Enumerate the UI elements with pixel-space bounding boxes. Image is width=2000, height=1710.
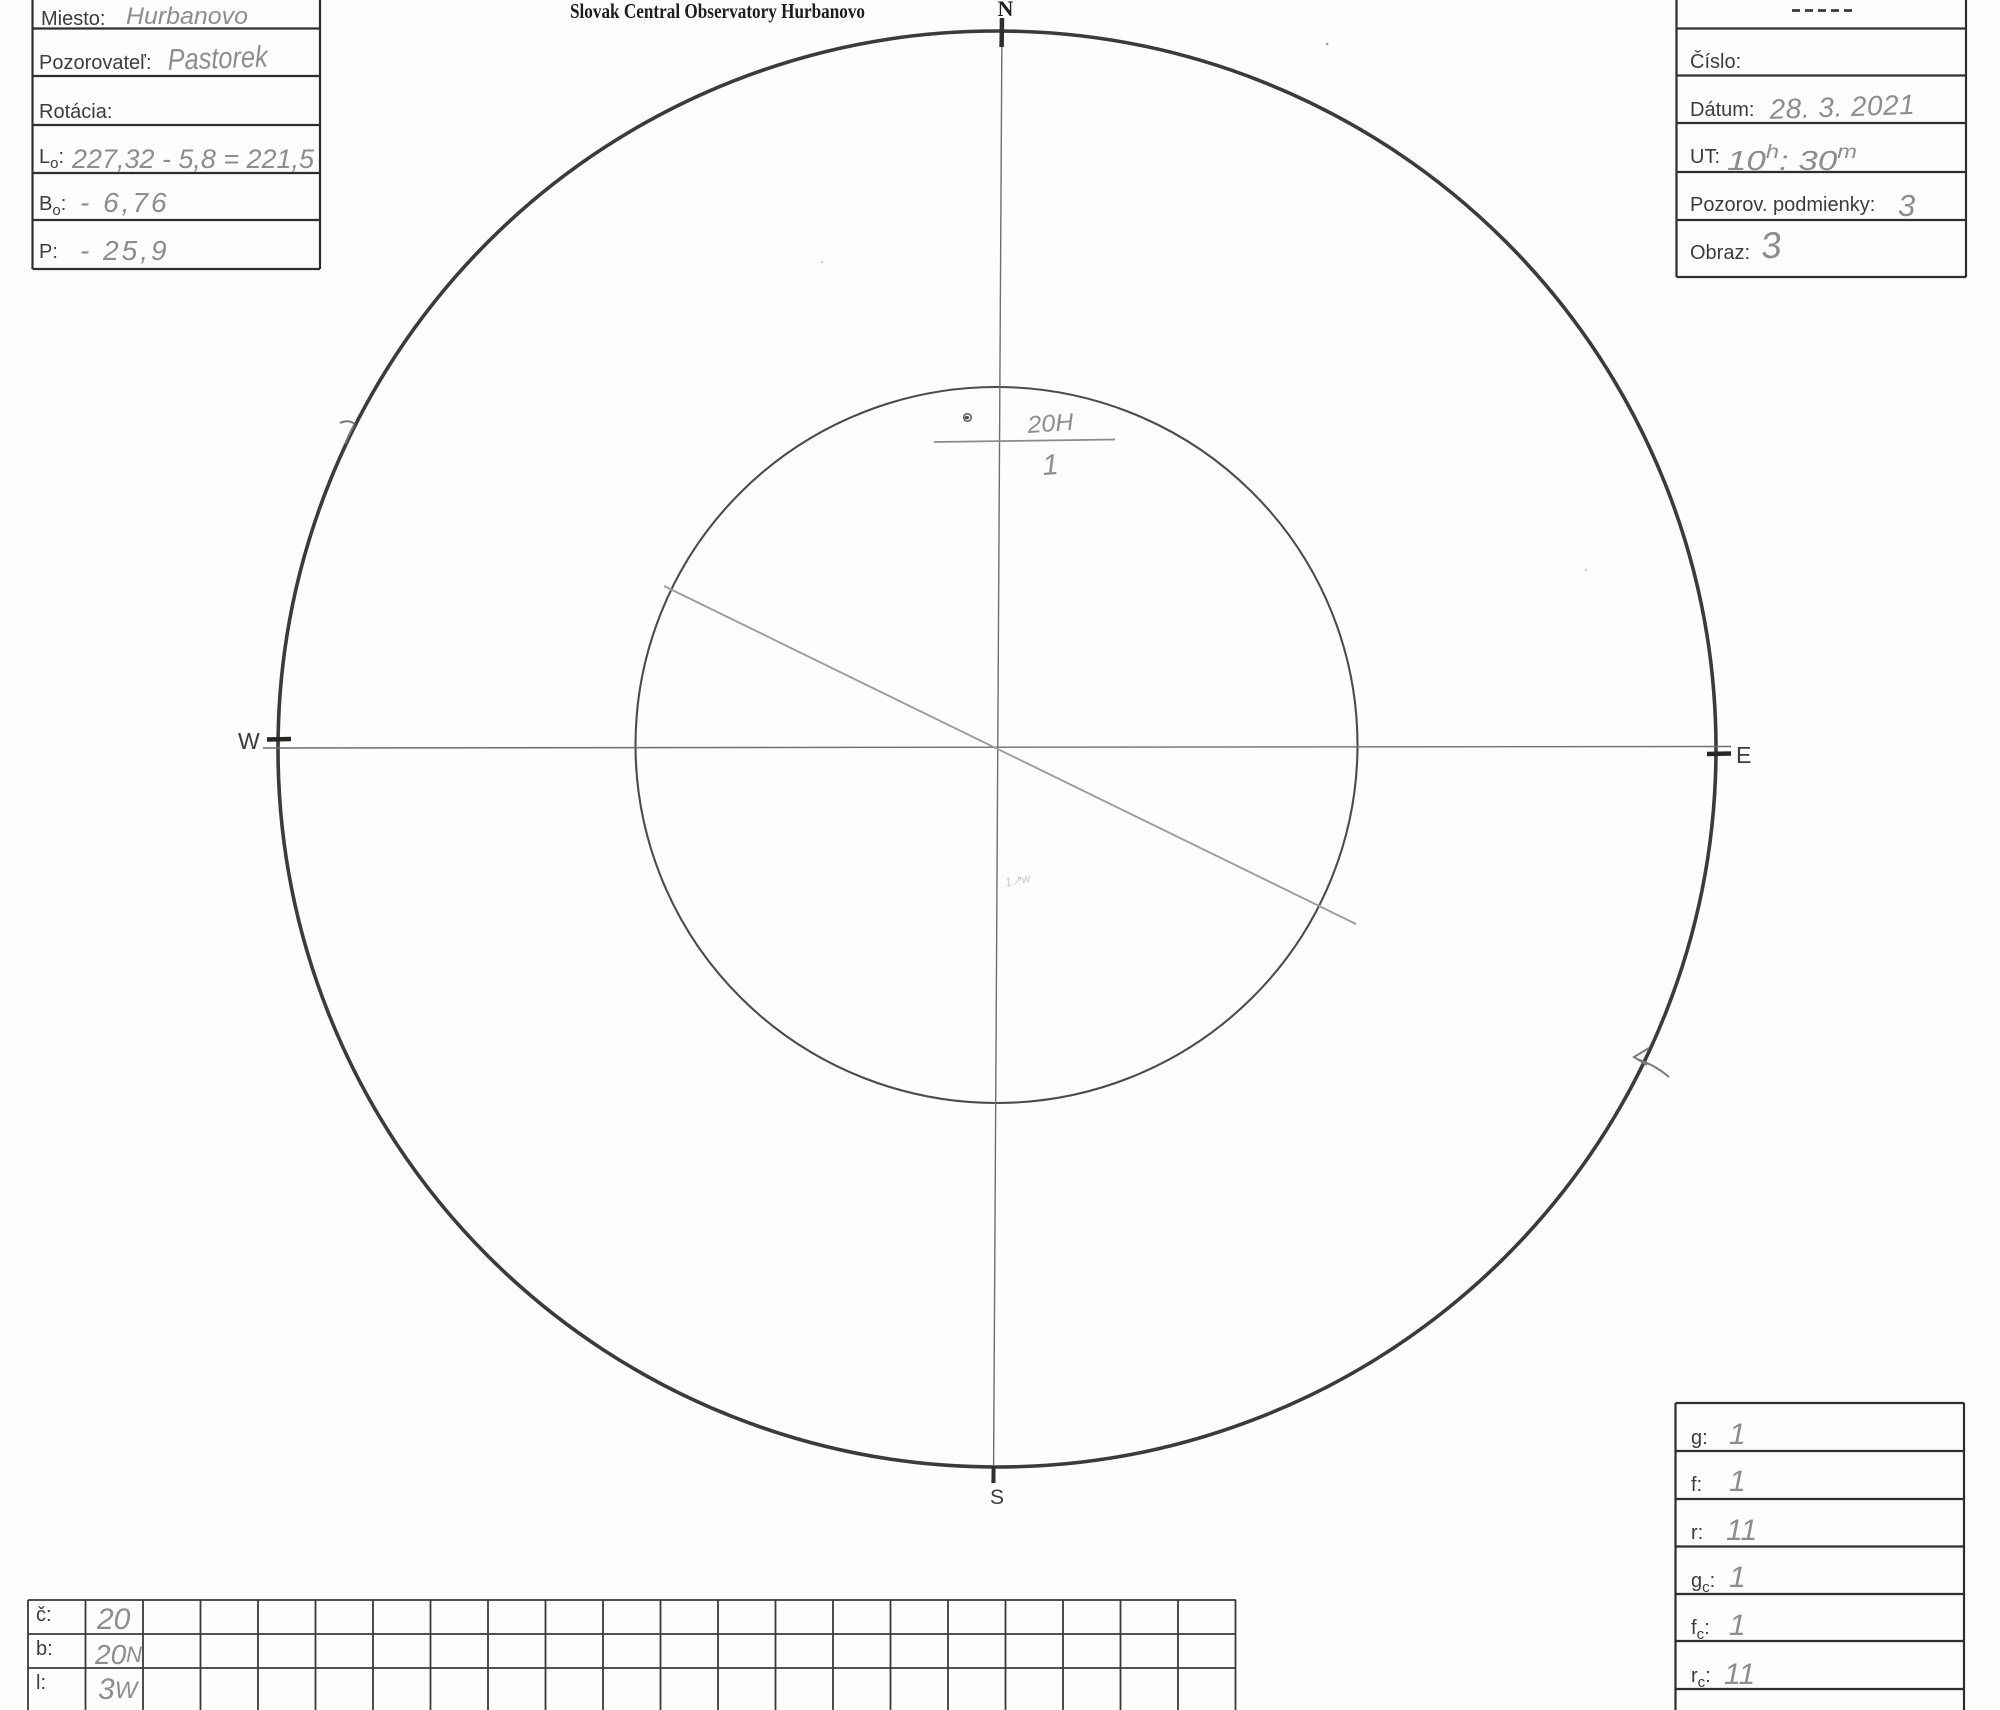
svg-text:f:: f: <box>1691 1474 1702 1496</box>
svg-text:- 25,9: - 25,9 <box>80 235 170 266</box>
svg-text:11: 11 <box>1726 1514 1757 1547</box>
svg-text:28. 3. 2021: 28. 3. 2021 <box>1768 89 1916 125</box>
svg-text:Hurbanovo: Hurbanovo <box>126 3 248 30</box>
svg-text:Pastorek: Pastorek <box>167 40 270 77</box>
svg-text:Číslo:: Číslo: <box>1690 50 1741 73</box>
svg-text:Pozorovateľ:: Pozorovateľ: <box>39 52 152 74</box>
svg-text:20H: 20H <box>1025 409 1075 439</box>
svg-text:Obraz:: Obraz: <box>1690 242 1750 264</box>
svg-text:g:: g: <box>1691 1427 1708 1449</box>
svg-text:Rotácia:: Rotácia: <box>39 101 112 123</box>
svg-text:1: 1 <box>1729 1418 1746 1451</box>
svg-text:Pozorov. podmienky:: Pozorov. podmienky: <box>1690 194 1875 216</box>
svg-text:r:: r: <box>1691 1522 1703 1544</box>
svg-text:3: 3 <box>1898 188 1915 223</box>
svg-text:č:: č: <box>36 1604 52 1626</box>
svg-text:3W: 3W <box>98 1673 140 1706</box>
svg-text:Miesto:: Miesto: <box>41 8 105 30</box>
svg-text:Slovak Central Observatory Hur: Slovak Central Observatory Hurbanovo <box>570 0 865 23</box>
svg-text:b:: b: <box>36 1638 53 1660</box>
svg-text:UT:: UT: <box>1690 146 1720 168</box>
svg-text:E: E <box>1736 742 1751 768</box>
svg-text:227,32 - 5,8 = 221,5: 227,32 - 5,8 = 221,5 <box>71 144 315 174</box>
svg-text:20: 20 <box>96 1603 131 1636</box>
svg-text:P:: P: <box>39 241 58 263</box>
svg-text:l:: l: <box>36 1672 46 1694</box>
svg-text:W: W <box>238 728 260 754</box>
svg-text:1: 1 <box>1041 449 1059 482</box>
svg-text:Dátum:: Dátum: <box>1690 99 1754 121</box>
svg-text:- 6,76: - 6,76 <box>80 187 170 218</box>
svg-text:N: N <box>998 0 1014 21</box>
svg-text:20N: 20N <box>94 1639 142 1670</box>
svg-text:1: 1 <box>1729 1561 1746 1594</box>
svg-text:1: 1 <box>1729 1609 1746 1642</box>
svg-text:1: 1 <box>1729 1465 1746 1498</box>
svg-text:11: 11 <box>1724 1658 1755 1691</box>
svg-text:S: S <box>990 1486 1004 1509</box>
